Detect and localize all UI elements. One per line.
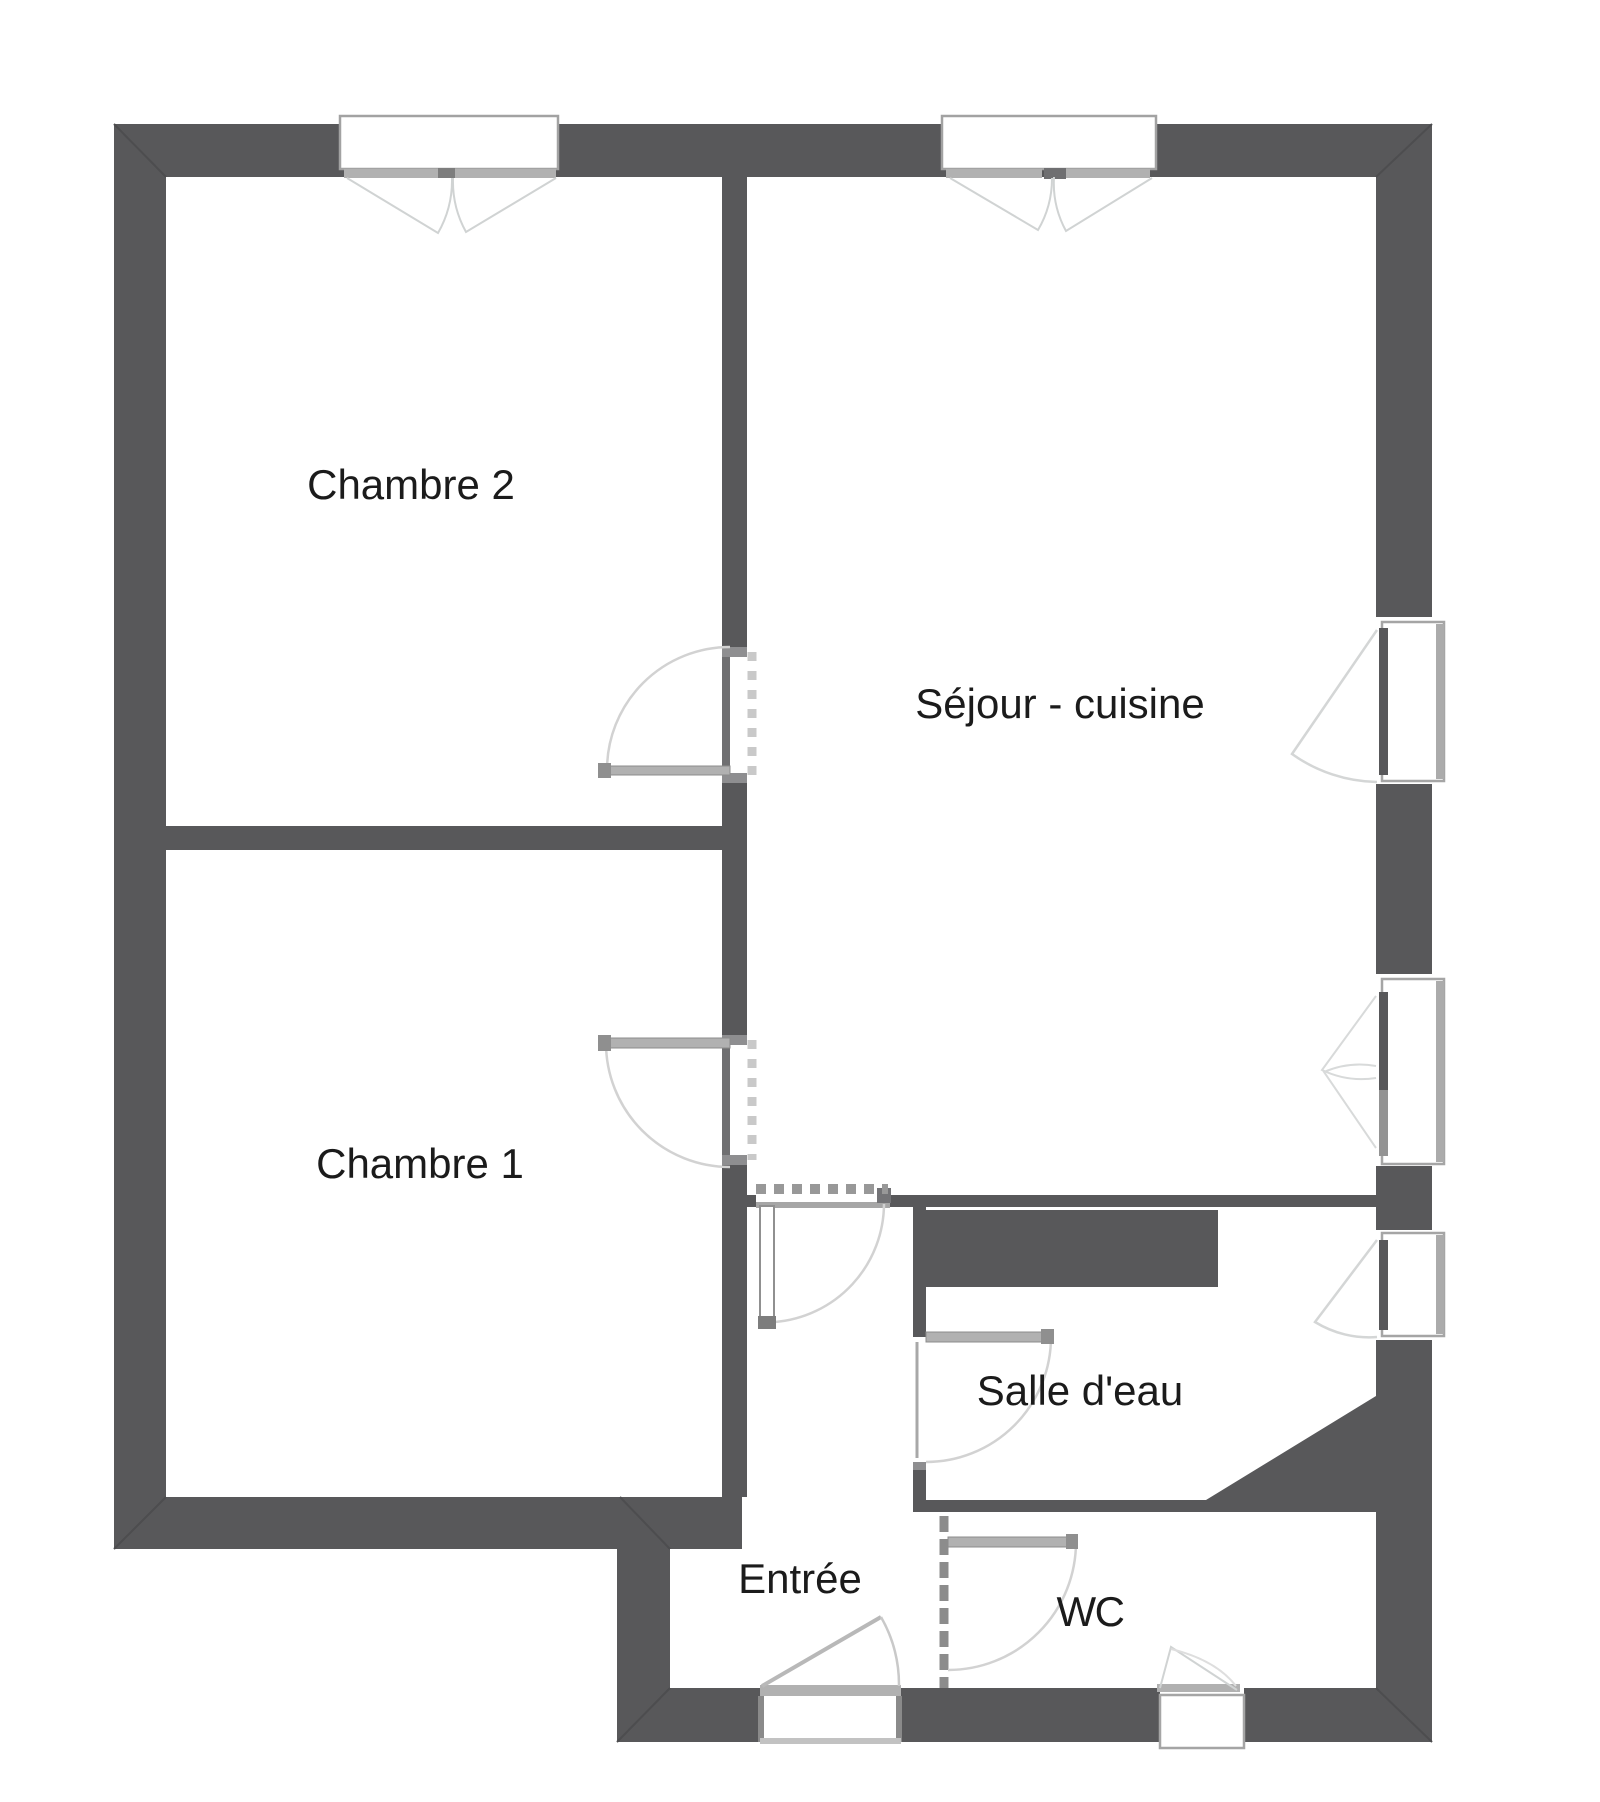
svg-text:Chambre 2: Chambre 2 <box>307 461 515 508</box>
svg-text:WC: WC <box>1057 1588 1124 1635</box>
svg-text:Salle d'eau: Salle d'eau <box>977 1367 1184 1414</box>
svg-text:Entrée: Entrée <box>738 1555 862 1602</box>
svg-text:Séjour - cuisine: Séjour - cuisine <box>915 680 1204 727</box>
svg-text:Chambre 1: Chambre 1 <box>316 1140 524 1187</box>
